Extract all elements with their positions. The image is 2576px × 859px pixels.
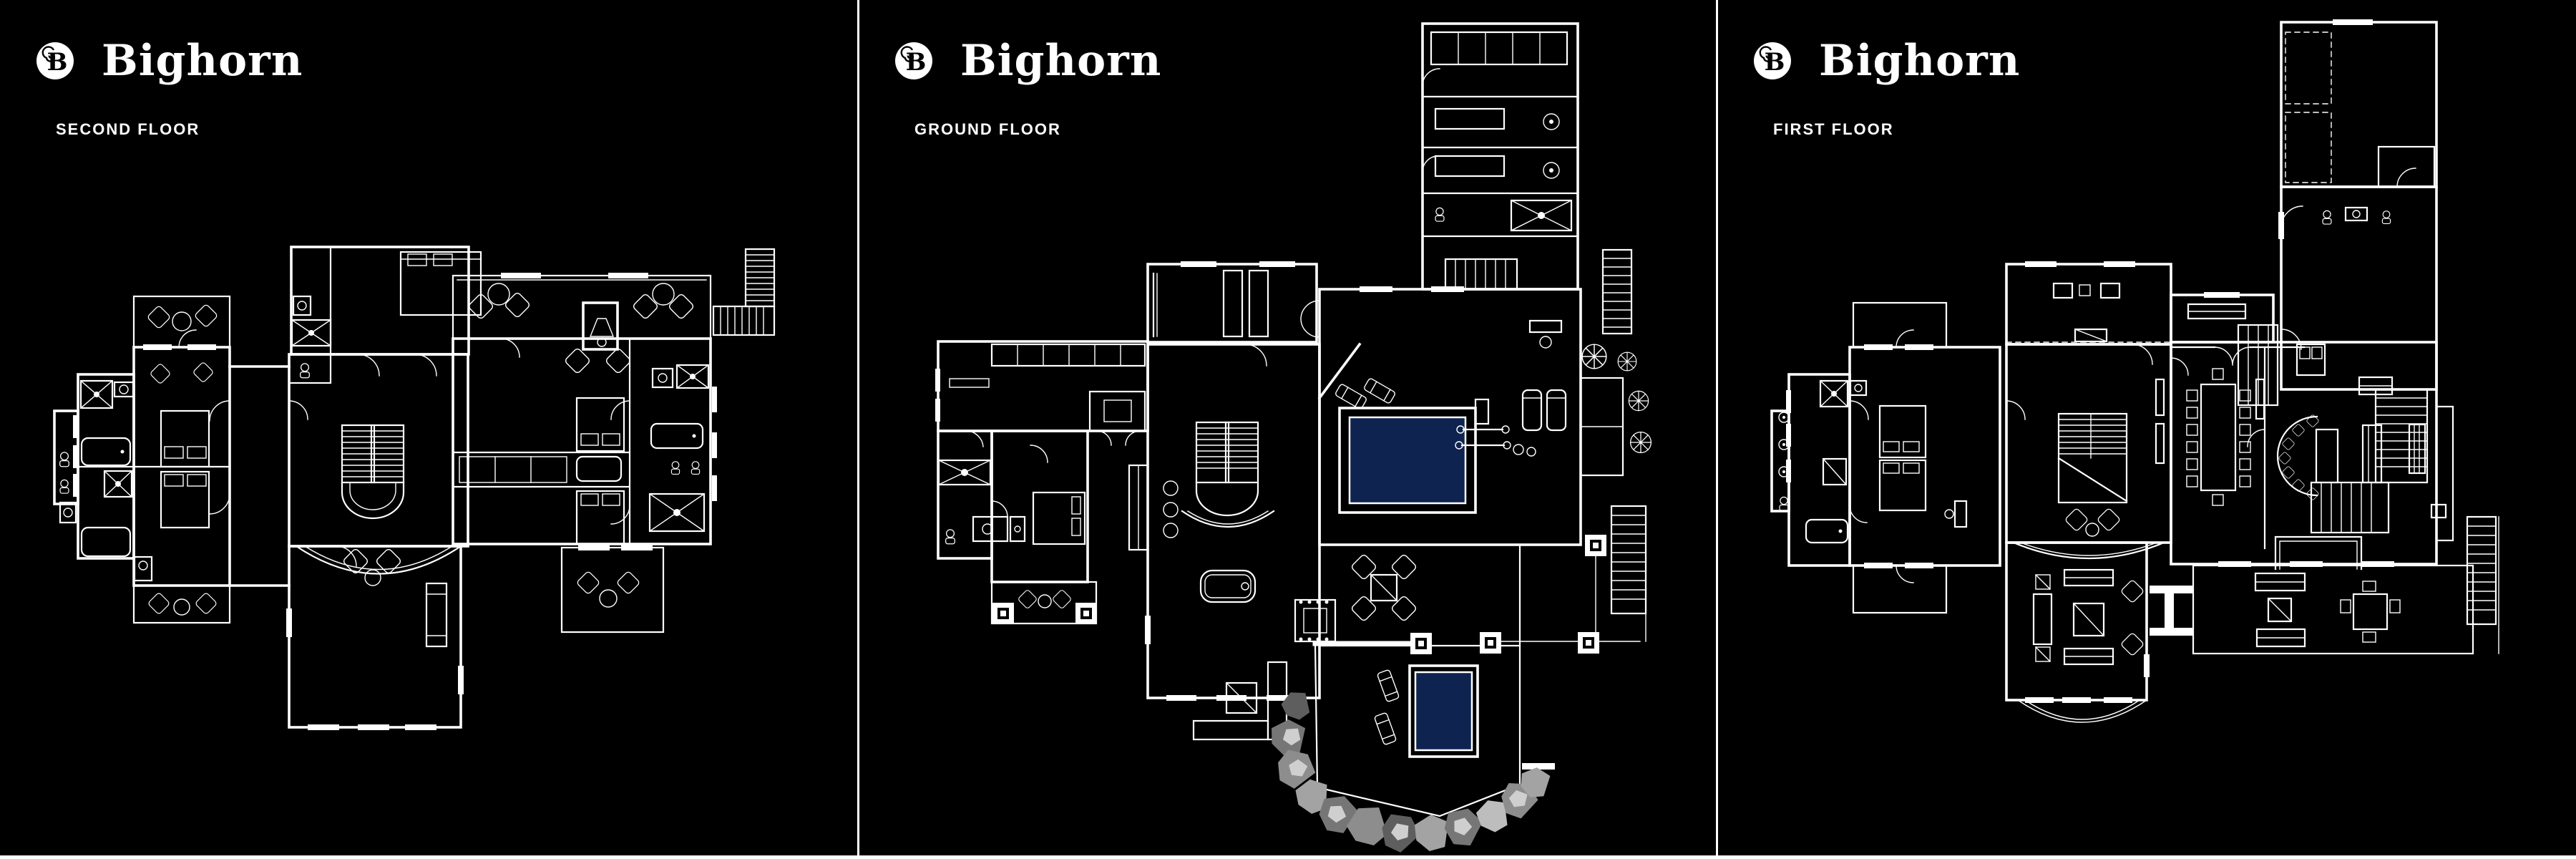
fireplace xyxy=(1295,600,1335,641)
exterior-stair xyxy=(2467,517,2499,654)
brand-wordmark: Bighorn xyxy=(960,39,1161,82)
covered-terrace xyxy=(1315,535,1640,654)
floor-label: SECOND FLOOR xyxy=(56,120,200,139)
garage xyxy=(2285,19,2373,183)
svg-text:B: B xyxy=(47,48,68,77)
great-room xyxy=(1145,571,1297,739)
balcony-bottom-left xyxy=(134,586,230,623)
living-room xyxy=(2018,570,2150,722)
bighorn-logo-icon: B xyxy=(1754,42,1791,79)
indoor-pool xyxy=(1335,286,1475,513)
bedroom-deck xyxy=(992,582,1097,624)
floor-label: GROUND FLOOR xyxy=(914,120,1061,139)
central-stair-hall xyxy=(2006,344,2164,558)
central-stair-hall xyxy=(1163,344,1274,538)
plunge-pool-water xyxy=(1415,672,1472,750)
panel-first-floor: B Bighorn FIRST FLOOR xyxy=(1717,0,2576,859)
bottom-border xyxy=(0,855,2576,859)
balcony-top-left xyxy=(134,296,230,350)
terrace xyxy=(2193,537,2473,654)
left-wing-bedrooms xyxy=(134,330,230,581)
svg-text:B: B xyxy=(1765,48,1785,77)
panel-second-floor: B Bighorn SECOND FLOOR xyxy=(0,0,859,859)
panel-divider xyxy=(1716,0,1718,859)
svg-text:B: B xyxy=(906,48,927,77)
brand-wordmark: Bighorn xyxy=(102,39,303,82)
panel-divider xyxy=(857,0,859,859)
panel-ground-floor: B Bighorn GROUND FLOOR xyxy=(859,0,1717,859)
side-deck-and-stair xyxy=(1581,344,1651,641)
media-room xyxy=(1153,261,1319,337)
upper-hall xyxy=(2006,261,2171,342)
deck-bottom-right xyxy=(562,545,663,632)
outdoor-fireplace xyxy=(2150,586,2194,636)
gym xyxy=(1455,321,1566,456)
sauna-wing xyxy=(1423,32,1578,289)
entry-hall-and-stairs xyxy=(2238,147,2434,533)
roof-deck-top-right xyxy=(453,273,711,339)
exterior-stair-upper xyxy=(1603,250,1631,334)
floor-label: FIRST FLOOR xyxy=(1773,120,1894,139)
brand-header: B Bighorn xyxy=(1754,39,2020,82)
left-wing-bathrooms xyxy=(60,381,134,556)
central-stair-hall xyxy=(289,354,461,586)
master-suite xyxy=(939,445,1148,550)
exterior-stair xyxy=(713,249,774,335)
bighorn-logo-icon: B xyxy=(36,42,74,79)
brand-header: B Bighorn xyxy=(895,39,1161,82)
brand-wordmark: Bighorn xyxy=(1819,39,2020,82)
right-wing-bedrooms xyxy=(453,339,631,544)
bighorn-logo-icon: B xyxy=(895,42,932,79)
indoor-pool-water xyxy=(1350,417,1465,503)
floorplan-sheet: { "brand": { "wordmark": "Bighorn", "log… xyxy=(0,0,2576,859)
right-wing-bathrooms xyxy=(650,365,717,531)
brand-header: B Bighorn xyxy=(36,39,303,82)
